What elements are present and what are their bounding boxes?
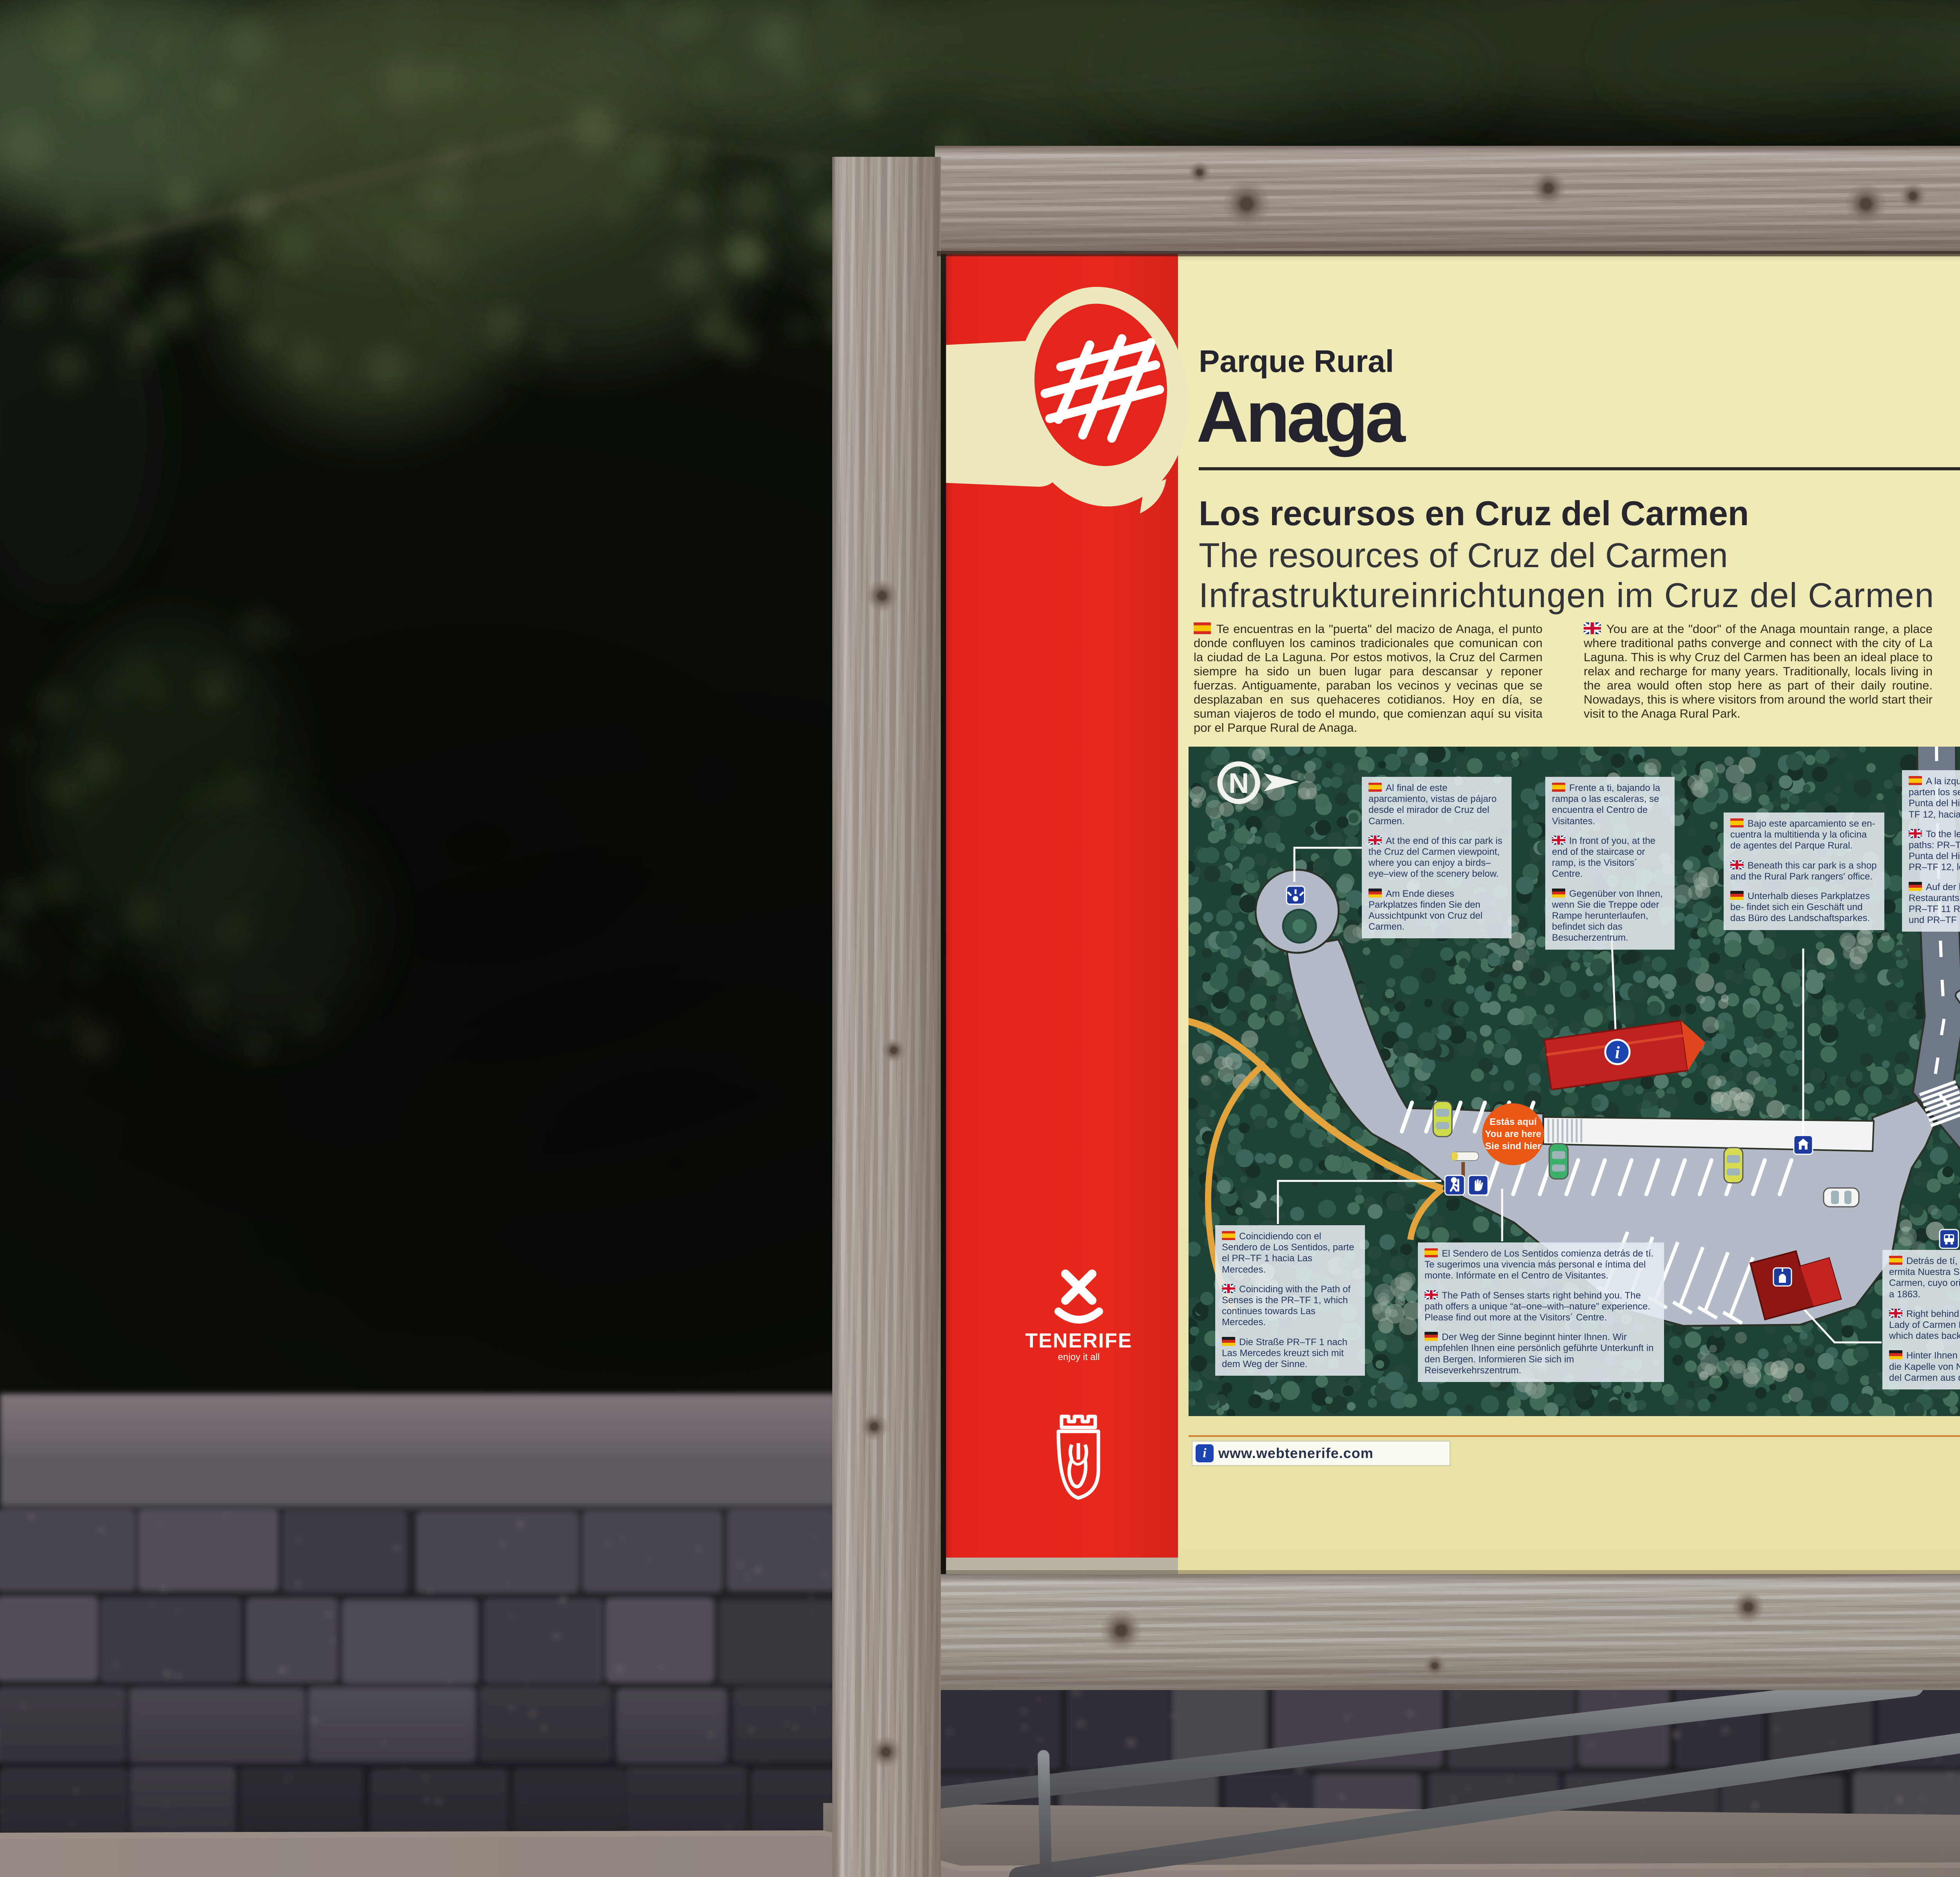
svg-text:Sie sind hier: Sie sind hier [1485, 1141, 1541, 1152]
svg-text:i: i [1615, 1043, 1620, 1062]
svg-text:Estás aquí: Estás aquí [1490, 1117, 1537, 1127]
svg-text:You are here: You are here [1485, 1129, 1541, 1139]
svg-text:enjoy it all: enjoy it all [1058, 1352, 1100, 1362]
svg-text:N: N [1229, 768, 1249, 799]
svg-text:TENERIFE: TENERIFE [1025, 1329, 1132, 1352]
